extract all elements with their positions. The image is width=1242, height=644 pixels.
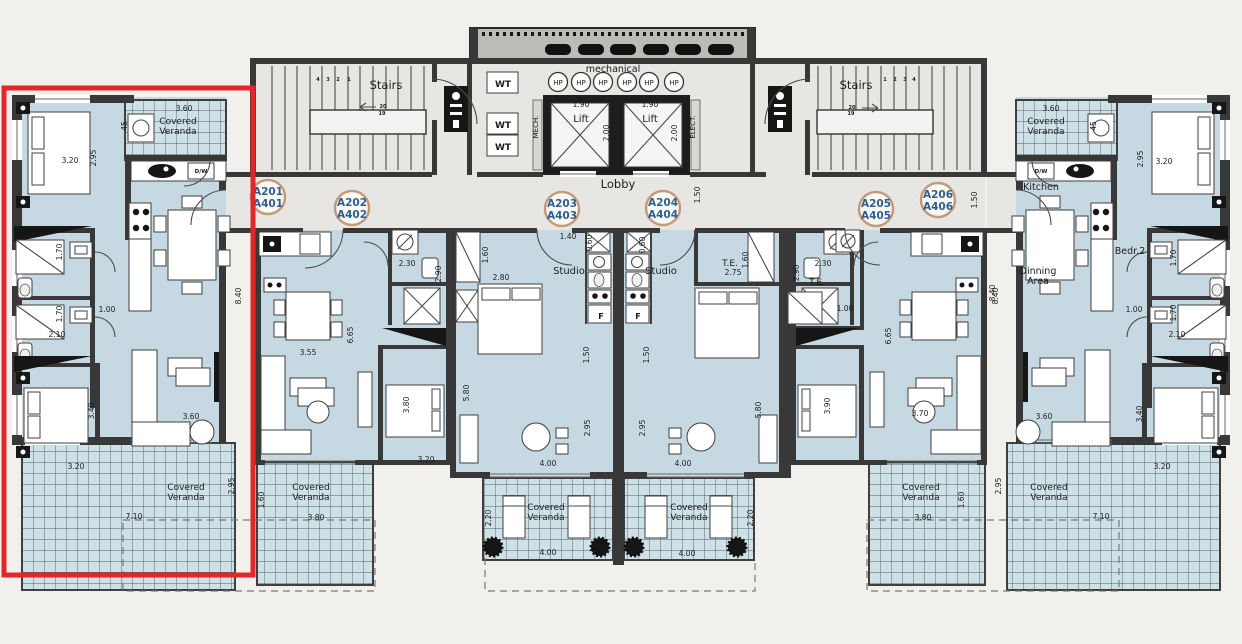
room-label: Covered bbox=[292, 483, 329, 493]
dimension-label: 1.00 bbox=[837, 304, 854, 313]
dimension-label: 4.00 bbox=[540, 548, 557, 557]
badge-line2: A402 bbox=[337, 209, 367, 221]
stair-number-label: 19 bbox=[848, 111, 855, 117]
dimension-label: 1.50 bbox=[582, 346, 591, 363]
room-label: Studio bbox=[553, 266, 585, 277]
dimension-label: 45 bbox=[1089, 121, 1098, 131]
badge-line2: A404 bbox=[648, 209, 678, 221]
dining-table bbox=[168, 210, 216, 280]
room-label: WT bbox=[495, 143, 512, 153]
dimension-label: 0.60 bbox=[585, 234, 594, 251]
badge-line2: A401 bbox=[253, 198, 283, 210]
dimension-label: 2.90 bbox=[434, 265, 443, 282]
room-label: ELECT. bbox=[689, 115, 697, 138]
room-label: Covered bbox=[1027, 117, 1064, 127]
dimension-label: 3.20 bbox=[68, 462, 85, 471]
dimension-label: 3.80 bbox=[308, 513, 325, 522]
dimension-label: 1.60 bbox=[957, 491, 966, 508]
table bbox=[687, 423, 715, 451]
unit-badge-a206-a406[interactable]: A206 A406 bbox=[921, 183, 955, 217]
dimension-label: 3.70 bbox=[912, 409, 929, 418]
room-label: Bedr.2 bbox=[1115, 246, 1146, 257]
dimension-label: 2.20 bbox=[484, 509, 493, 526]
sun-lounger bbox=[503, 496, 525, 538]
room-label: Veranda bbox=[167, 493, 204, 503]
room-label: F bbox=[598, 312, 603, 321]
dimension-label: 3.20 bbox=[1154, 462, 1171, 471]
washing-machine bbox=[128, 114, 154, 142]
dimension-label: 1.90 bbox=[573, 100, 590, 109]
unit-badge-a202-a402[interactable]: A202 A402 bbox=[335, 191, 369, 225]
plant-icon bbox=[728, 538, 746, 556]
kitchen-sink bbox=[148, 164, 176, 178]
sofa bbox=[261, 356, 285, 434]
stair-number-label: 3 bbox=[903, 77, 907, 83]
hob bbox=[129, 203, 151, 239]
dimension-label: 1.70 bbox=[1169, 249, 1178, 266]
stair-number-label: 2 bbox=[893, 77, 897, 83]
dimension-label: 1.40 bbox=[560, 232, 577, 241]
floor-plan-drawing: 3.60453.202.951.701.702.101.008.403.403.… bbox=[0, 0, 1242, 644]
dimension-label: 4.00 bbox=[675, 459, 692, 468]
dimension-label: 6.65 bbox=[346, 326, 355, 343]
kitchen-sink bbox=[1066, 164, 1094, 178]
room-label: Stairs bbox=[840, 78, 873, 92]
plant-icon bbox=[625, 538, 643, 556]
dimension-label: 5.80 bbox=[462, 384, 471, 401]
sun-lounger bbox=[568, 496, 590, 538]
room-label: Area bbox=[1027, 276, 1049, 287]
dimension-label: 3.60 bbox=[183, 412, 200, 421]
badge-line1: A203 bbox=[547, 198, 577, 210]
table bbox=[522, 423, 550, 451]
stair-number-label: 1 bbox=[883, 77, 887, 83]
dimension-label: 1.50 bbox=[693, 186, 702, 203]
dimension-label: 2.10 bbox=[49, 330, 66, 339]
room-label: Covered bbox=[167, 483, 204, 493]
stair-number-label: 20 bbox=[380, 104, 387, 110]
badge-line1: A206 bbox=[923, 189, 953, 201]
room-label: D/W bbox=[1035, 169, 1048, 175]
dimension-label: 1.70 bbox=[1169, 304, 1178, 321]
room-label: HP bbox=[669, 79, 679, 87]
room-label: Lift bbox=[642, 114, 658, 125]
dimension-label: 1.60 bbox=[741, 251, 750, 268]
room-label: HP bbox=[644, 79, 654, 87]
dimension-label: 2.10 bbox=[1169, 330, 1186, 339]
unit-badge-a201-a401[interactable]: A201 A401 bbox=[251, 180, 285, 214]
dimension-label: 4.00 bbox=[540, 459, 557, 468]
plant-icon bbox=[591, 538, 609, 556]
hob bbox=[956, 278, 978, 292]
room-label: Veranda bbox=[159, 127, 196, 137]
dimension-label: 1.50 bbox=[642, 346, 651, 363]
dimension-label: 4.00 bbox=[679, 549, 696, 558]
stair-number-label: 19 bbox=[379, 111, 386, 117]
dimension-label: 3.20 bbox=[1156, 157, 1173, 166]
dimension-label: 1.60 bbox=[481, 246, 490, 263]
room-label: D/W bbox=[195, 169, 208, 175]
dimension-label: 2.95 bbox=[1136, 150, 1145, 167]
dimension-label: 3.80 bbox=[402, 396, 411, 413]
room-label: WT bbox=[495, 80, 512, 90]
dimension-label: 2.95 bbox=[638, 419, 647, 436]
dimension-label: 3.60 bbox=[1043, 104, 1060, 113]
dimension-label: 3.80 bbox=[915, 513, 932, 522]
stair-number-label: 1 bbox=[347, 77, 351, 83]
dimension-label: 3.60 bbox=[1036, 412, 1053, 421]
sofa bbox=[957, 356, 981, 434]
room-label: Veranda bbox=[670, 513, 707, 523]
room-label: WT bbox=[495, 121, 512, 131]
sofa bbox=[460, 415, 478, 463]
room-label: Veranda bbox=[1027, 127, 1064, 137]
sofa bbox=[132, 350, 157, 426]
room-label: HP bbox=[576, 79, 586, 87]
room-label: mechanical bbox=[586, 64, 641, 75]
dimension-label: 2.00 bbox=[602, 124, 611, 141]
dimension-label: 1.00 bbox=[1126, 305, 1143, 314]
dining-table bbox=[912, 292, 956, 340]
dimension-label: 6.65 bbox=[884, 327, 893, 344]
dimension-label: 1.50 bbox=[970, 191, 979, 208]
room-label: Covered bbox=[527, 503, 564, 513]
hob bbox=[264, 278, 286, 292]
accessibility-symbol-right bbox=[768, 86, 792, 132]
room-label: Covered bbox=[670, 503, 707, 513]
dimension-label: 8.40 bbox=[234, 287, 243, 304]
unit-badge-a205-a405[interactable]: A205 A405 bbox=[859, 192, 893, 226]
dimension-label: 2.95 bbox=[994, 477, 1003, 494]
tv-cabinet bbox=[870, 372, 884, 427]
tv bbox=[1023, 352, 1028, 402]
room-label: Covered bbox=[159, 117, 196, 127]
stair-number-label: 3 bbox=[326, 77, 330, 83]
dimension-label: 3.40 bbox=[87, 402, 96, 419]
dimension-label: 2.95 bbox=[227, 477, 236, 494]
unit-badge-a203-a403[interactable]: A203 A403 bbox=[545, 192, 579, 226]
room-label: T.E. bbox=[721, 259, 738, 269]
plant-icon bbox=[484, 538, 502, 556]
tv-cabinet bbox=[358, 372, 372, 427]
dimension-label: 2.80 bbox=[493, 273, 510, 282]
sun-lounger bbox=[645, 496, 667, 538]
room-label: F bbox=[635, 312, 640, 321]
dimension-label: 3.90 bbox=[823, 397, 832, 414]
stair-number-label: 2 bbox=[336, 77, 340, 83]
dimension-label: 2.95 bbox=[89, 149, 98, 166]
stair-number-label: 4 bbox=[316, 77, 320, 83]
room-label: Studio bbox=[645, 266, 677, 277]
room-label: HP bbox=[553, 79, 563, 87]
dimension-label: 7.10 bbox=[126, 512, 143, 521]
dimension-label: 5.80 bbox=[754, 401, 763, 418]
room-label: Lobby bbox=[601, 177, 636, 191]
dimension-label: 1.70 bbox=[55, 243, 64, 260]
room-label: Veranda bbox=[1030, 493, 1067, 503]
dimension-label: 2.30 bbox=[399, 259, 416, 268]
unit-badge-a204-a404[interactable]: A204 A404 bbox=[646, 191, 680, 225]
dimension-label: 2.95 bbox=[583, 419, 592, 436]
hob bbox=[1091, 203, 1113, 239]
dimension-label: 3.20 bbox=[62, 156, 79, 165]
sun-lounger bbox=[710, 496, 732, 538]
room-label: Covered bbox=[1030, 483, 1067, 493]
dimension-label: 8.40 bbox=[991, 287, 1000, 304]
dimension-label: 2.00 bbox=[670, 124, 679, 141]
dining-table bbox=[286, 292, 330, 340]
tv bbox=[214, 352, 219, 402]
badge-line2: A405 bbox=[861, 210, 891, 222]
stair-number-label: 4 bbox=[912, 77, 916, 83]
dimension-label: 0.60 bbox=[638, 236, 647, 253]
room-label: T.E. bbox=[808, 278, 825, 288]
room-label: Kitchen bbox=[1023, 182, 1059, 193]
lift-shaft bbox=[543, 95, 690, 177]
badge-line2: A403 bbox=[547, 210, 577, 222]
badge-line1: A204 bbox=[648, 197, 678, 209]
room-label: HP bbox=[622, 79, 632, 87]
dimension-label: 1.90 bbox=[642, 100, 659, 109]
dimension-label: 3.40 bbox=[1135, 405, 1144, 422]
sofa bbox=[1085, 350, 1110, 426]
dimension-label: 7.10 bbox=[1093, 512, 1110, 521]
dimension-label: 3.55 bbox=[300, 348, 317, 357]
floor-plan-page: 3.60453.202.951.701.702.101.008.403.403.… bbox=[0, 0, 1242, 644]
room-label: Veranda bbox=[292, 493, 329, 503]
badge-line1: A205 bbox=[861, 198, 891, 210]
room-label: Veranda bbox=[527, 513, 564, 523]
dimension-label: 45 bbox=[120, 121, 129, 131]
dimension-label: 2.75 bbox=[725, 268, 742, 277]
dimension-label: 1.00 bbox=[99, 305, 116, 314]
badge-line1: A201 bbox=[253, 186, 283, 198]
room-label: MECH. bbox=[532, 116, 540, 139]
dimension-label: 3.60 bbox=[176, 104, 193, 113]
room-label: Covered bbox=[902, 483, 939, 493]
room-label: Stairs bbox=[370, 78, 403, 92]
dimension-label: 1.70 bbox=[55, 305, 64, 322]
badge-line1: A202 bbox=[337, 197, 367, 209]
dimension-label: 3.20 bbox=[418, 455, 435, 464]
dimension-label: 2.30 bbox=[815, 259, 832, 268]
dimension-label: 2.90 bbox=[792, 264, 801, 281]
room-label: Lift bbox=[573, 114, 589, 125]
badge-line2: A406 bbox=[923, 201, 953, 213]
room-label: Veranda bbox=[902, 493, 939, 503]
dimension-label: 1.60 bbox=[257, 491, 266, 508]
room-label: HP bbox=[598, 79, 608, 87]
sofa bbox=[759, 415, 777, 463]
dimension-label: 2.20 bbox=[746, 509, 755, 526]
